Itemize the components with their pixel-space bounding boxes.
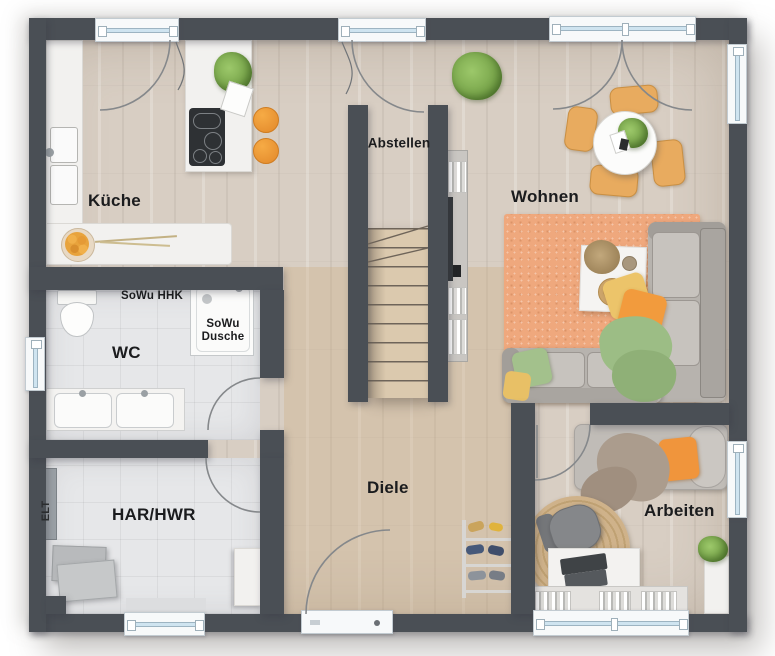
sofa-chaise-seat-1 <box>652 232 700 298</box>
shelf-books-mid <box>448 287 467 315</box>
terrace-door-glass <box>554 26 693 31</box>
window-wohnen-right-glass <box>735 49 740 121</box>
shower-drain <box>202 294 212 304</box>
kitchen-sink-basin-bottom <box>50 165 78 205</box>
terrace-door-mullion <box>622 23 629 36</box>
media-shelf <box>445 150 468 362</box>
burner-low-right <box>209 151 222 164</box>
shoe-shelf-3 <box>462 590 512 593</box>
label-elt: ELT <box>40 501 52 522</box>
fruit-bowl-fruit <box>65 232 89 256</box>
wall-wc-har-left <box>29 440 208 458</box>
barstool-1 <box>253 107 279 133</box>
shelf-books-top <box>448 161 467 193</box>
shoe-rack-rail <box>462 520 466 598</box>
coffee-table-plant <box>584 240 620 274</box>
window-arbeiten-right <box>727 441 747 518</box>
bookshelf-books-3 <box>641 591 677 611</box>
window-hall-top-glass <box>343 28 423 33</box>
window-arbeiten-bottom <box>533 610 689 636</box>
shoe-pair-5 <box>468 570 487 581</box>
bookshelf-books-2 <box>599 591 631 611</box>
terrace-door-top <box>549 16 696 42</box>
shoe-pair-2 <box>488 522 503 532</box>
shoe-pair-3 <box>465 544 484 555</box>
shoe-rack <box>462 520 512 598</box>
window-kitchen-top-glass <box>100 28 176 33</box>
room-label-diele: Diele <box>367 478 409 498</box>
shelf-books-low <box>448 319 467 355</box>
wall-outer-left <box>29 18 46 632</box>
office-plant <box>698 536 728 562</box>
vanity-faucet-left <box>79 390 86 397</box>
window-arbeiten-right-glass <box>735 446 740 515</box>
coffee-table-vase <box>622 256 637 271</box>
window-hall-top <box>338 18 426 42</box>
shoe-shelf-1 <box>462 538 512 541</box>
shoe-shelf-2 <box>462 564 512 567</box>
wall-kitchen-wc <box>29 267 283 290</box>
entrance-door <box>301 610 393 634</box>
kitchen-faucet <box>45 148 54 157</box>
wall-wc-right-lower <box>260 430 284 458</box>
wall-diele-arbeiten <box>511 403 535 614</box>
staircase <box>368 228 428 398</box>
window-kitchen-top <box>95 18 179 42</box>
label-sowu-hhk: SoWu HHK <box>121 290 183 302</box>
pillow-yellow-left <box>502 370 532 401</box>
room-label-wc: WC <box>112 343 141 363</box>
window-wc-left <box>25 337 45 391</box>
window-arbeiten-bottom-mullion <box>611 618 618 631</box>
wall-har-right <box>260 458 284 614</box>
label-sowu-dusche: SoWu Dusche <box>196 318 250 344</box>
room-label-har-hwr: HAR/HWR <box>112 505 196 525</box>
room-label-arbeiten: Arbeiten <box>644 501 715 521</box>
tv-bracket <box>453 265 461 277</box>
room-label-kueche: Küche <box>88 191 141 211</box>
shoe-pair-4 <box>487 544 505 556</box>
room-label-wohnen: Wohnen <box>511 187 579 207</box>
bookshelf-books-1 <box>535 591 571 611</box>
vanity-basin-right <box>116 393 174 428</box>
shoe-pair-1 <box>467 520 485 533</box>
window-har-bottom <box>124 612 205 636</box>
wall-stair-right <box>428 105 448 402</box>
wall-wohnen-arbeiten <box>590 403 729 425</box>
wall-har-pier <box>46 596 66 614</box>
sofa-chaise-backrest <box>700 228 726 398</box>
burner-oval <box>193 113 221 129</box>
window-arbeiten-bottom-glass <box>538 621 686 626</box>
wall-stair-left <box>348 105 368 402</box>
shoe-pair-6 <box>488 570 505 581</box>
burner-mid <box>204 132 222 150</box>
office-cabinet <box>704 556 729 614</box>
vanity-faucet-right <box>141 390 148 397</box>
room-label-abstellen: Abstellen <box>368 136 431 151</box>
window-wohnen-right <box>727 44 747 124</box>
kitchen-sink-basin-top <box>50 127 78 163</box>
vanity-basin-left <box>54 393 112 428</box>
wall-wc-right-upper <box>260 290 284 378</box>
barstool-2 <box>253 138 279 164</box>
cooktop <box>189 108 225 166</box>
har-cabinet <box>234 548 262 606</box>
entrance-door-hinge <box>310 620 320 625</box>
floor-plan-canvas: Küche SoWu HHK SoWu Dusche WC ELT HAR/HW… <box>0 0 775 656</box>
window-har-bottom-glass <box>129 622 202 627</box>
living-plant <box>452 52 502 100</box>
window-wc-left-glass <box>33 342 38 388</box>
burner-low-left <box>193 149 207 163</box>
entrance-door-handle <box>374 620 380 626</box>
